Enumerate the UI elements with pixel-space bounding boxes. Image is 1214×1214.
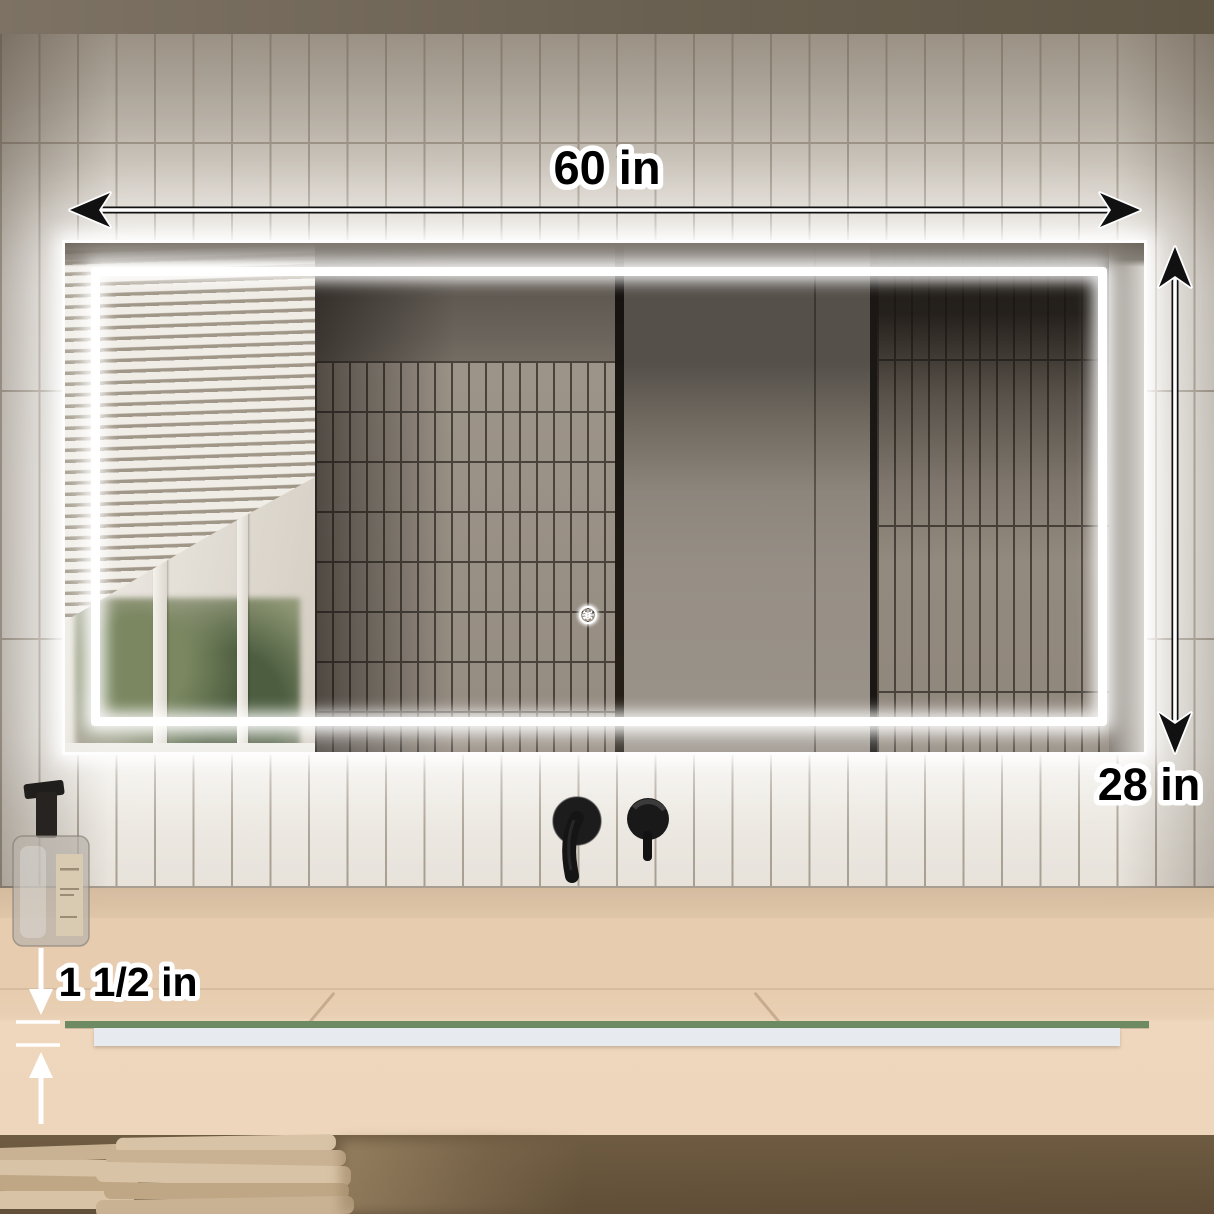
product-photo: 60 in 28 in 1 1/2 in: [0, 0, 1214, 1214]
inner-led-frame: [91, 267, 1107, 726]
window-sill: [65, 743, 315, 752]
mirror-reflection: [65, 243, 1144, 752]
ceiling: [0, 0, 1214, 34]
defog-icon: [579, 606, 597, 624]
mirror-back-frame: [94, 1028, 1120, 1046]
backsplash: [0, 888, 1214, 918]
reflected-ceiling-band: [65, 243, 1144, 267]
towel-blur-right: [340, 1140, 580, 1214]
led-mirror: [62, 240, 1147, 755]
towel-stack-center: [96, 1136, 356, 1214]
led-glow-right: [1109, 243, 1144, 752]
mirror-glass-edge: [65, 1021, 1149, 1028]
sink-ledge-line: [0, 988, 1214, 990]
